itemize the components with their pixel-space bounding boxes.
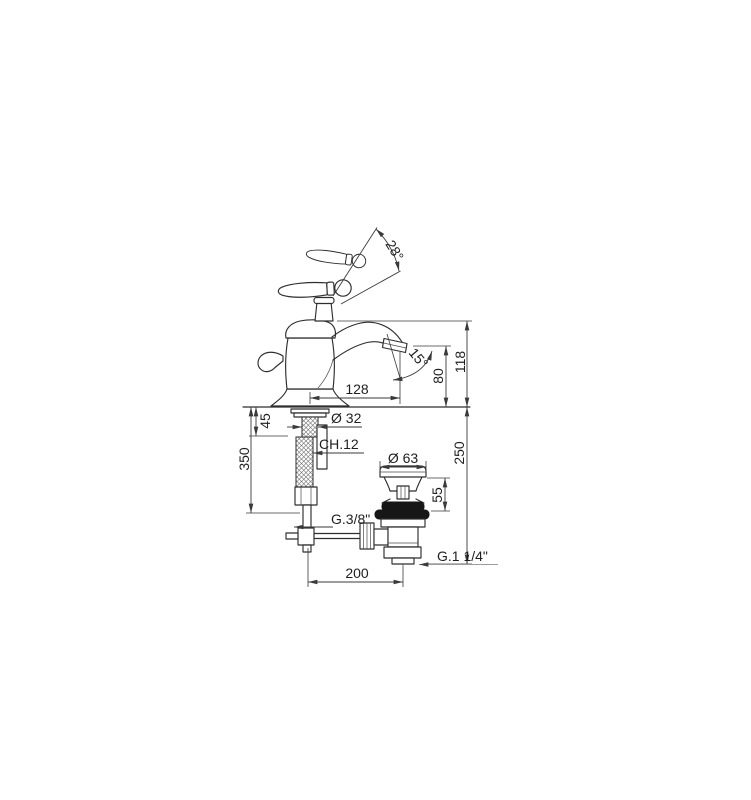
dim-deck-thickness: 45: [249, 407, 288, 436]
waste-neck-knob: [397, 486, 409, 499]
dim-popup-rod-offset-label: 200: [345, 565, 369, 581]
cross-fitting: [298, 528, 314, 545]
dim-inlet-thread-label: G.3/8": [331, 511, 370, 527]
spout: [332, 322, 407, 360]
cross-pin: [286, 533, 298, 539]
dim-waste-head-height: 55: [427, 478, 450, 511]
waste-tailpipe: [392, 558, 414, 564]
flex-hose: [296, 437, 313, 487]
dim-wrench-size: CH.12: [313, 436, 364, 453]
threaded-shank: [302, 417, 318, 437]
horizontal-rod: [314, 534, 362, 539]
faucet-column: [286, 338, 335, 389]
popup-knob: [258, 352, 283, 371]
dim-waste-thread-label: G.1 1/4": [437, 548, 488, 564]
waste-clamp-ring: [381, 519, 425, 527]
waste-body: [388, 527, 418, 547]
faucet-technical-drawing: 28° 15°: [0, 0, 751, 800]
handle-lever-closed: [278, 279, 352, 299]
dim-hose-drop-label: 350: [236, 447, 252, 471]
gasket-lower: [375, 510, 429, 519]
dim-spout-angle-label: 15°: [406, 345, 432, 372]
waste-assembly: [375, 466, 429, 566]
dim-below-deck-depth: 250: [427, 407, 472, 564]
dim-outlet-height-label: 80: [430, 368, 446, 384]
dim-wrench-size-label: CH.12: [319, 436, 359, 452]
hose-nut: [295, 487, 317, 505]
dim-waste-flange-diameter-label: Ø 63: [388, 450, 419, 466]
dim-deck-thickness-label: 45: [257, 413, 273, 429]
waste-plug-cap: [380, 466, 426, 477]
dim-waste-thread: G.1 1/4": [419, 548, 498, 565]
popup-rod-tube: [303, 505, 311, 528]
faucet-cap: [286, 320, 336, 338]
dim-below-deck-depth-label: 250: [451, 441, 467, 465]
dim-waste-head-height-label: 55: [429, 487, 445, 503]
dim-spout-reach-label: 128: [345, 381, 369, 397]
dim-shank-diameter-label: Ø 32: [331, 410, 362, 426]
faucet-body: [258, 320, 349, 406]
dim-body-height-label: 118: [452, 351, 468, 374]
handle-pivot-stem: [314, 298, 334, 322]
rod-adapter: [374, 529, 388, 545]
waste-lower-nut: [384, 547, 421, 558]
